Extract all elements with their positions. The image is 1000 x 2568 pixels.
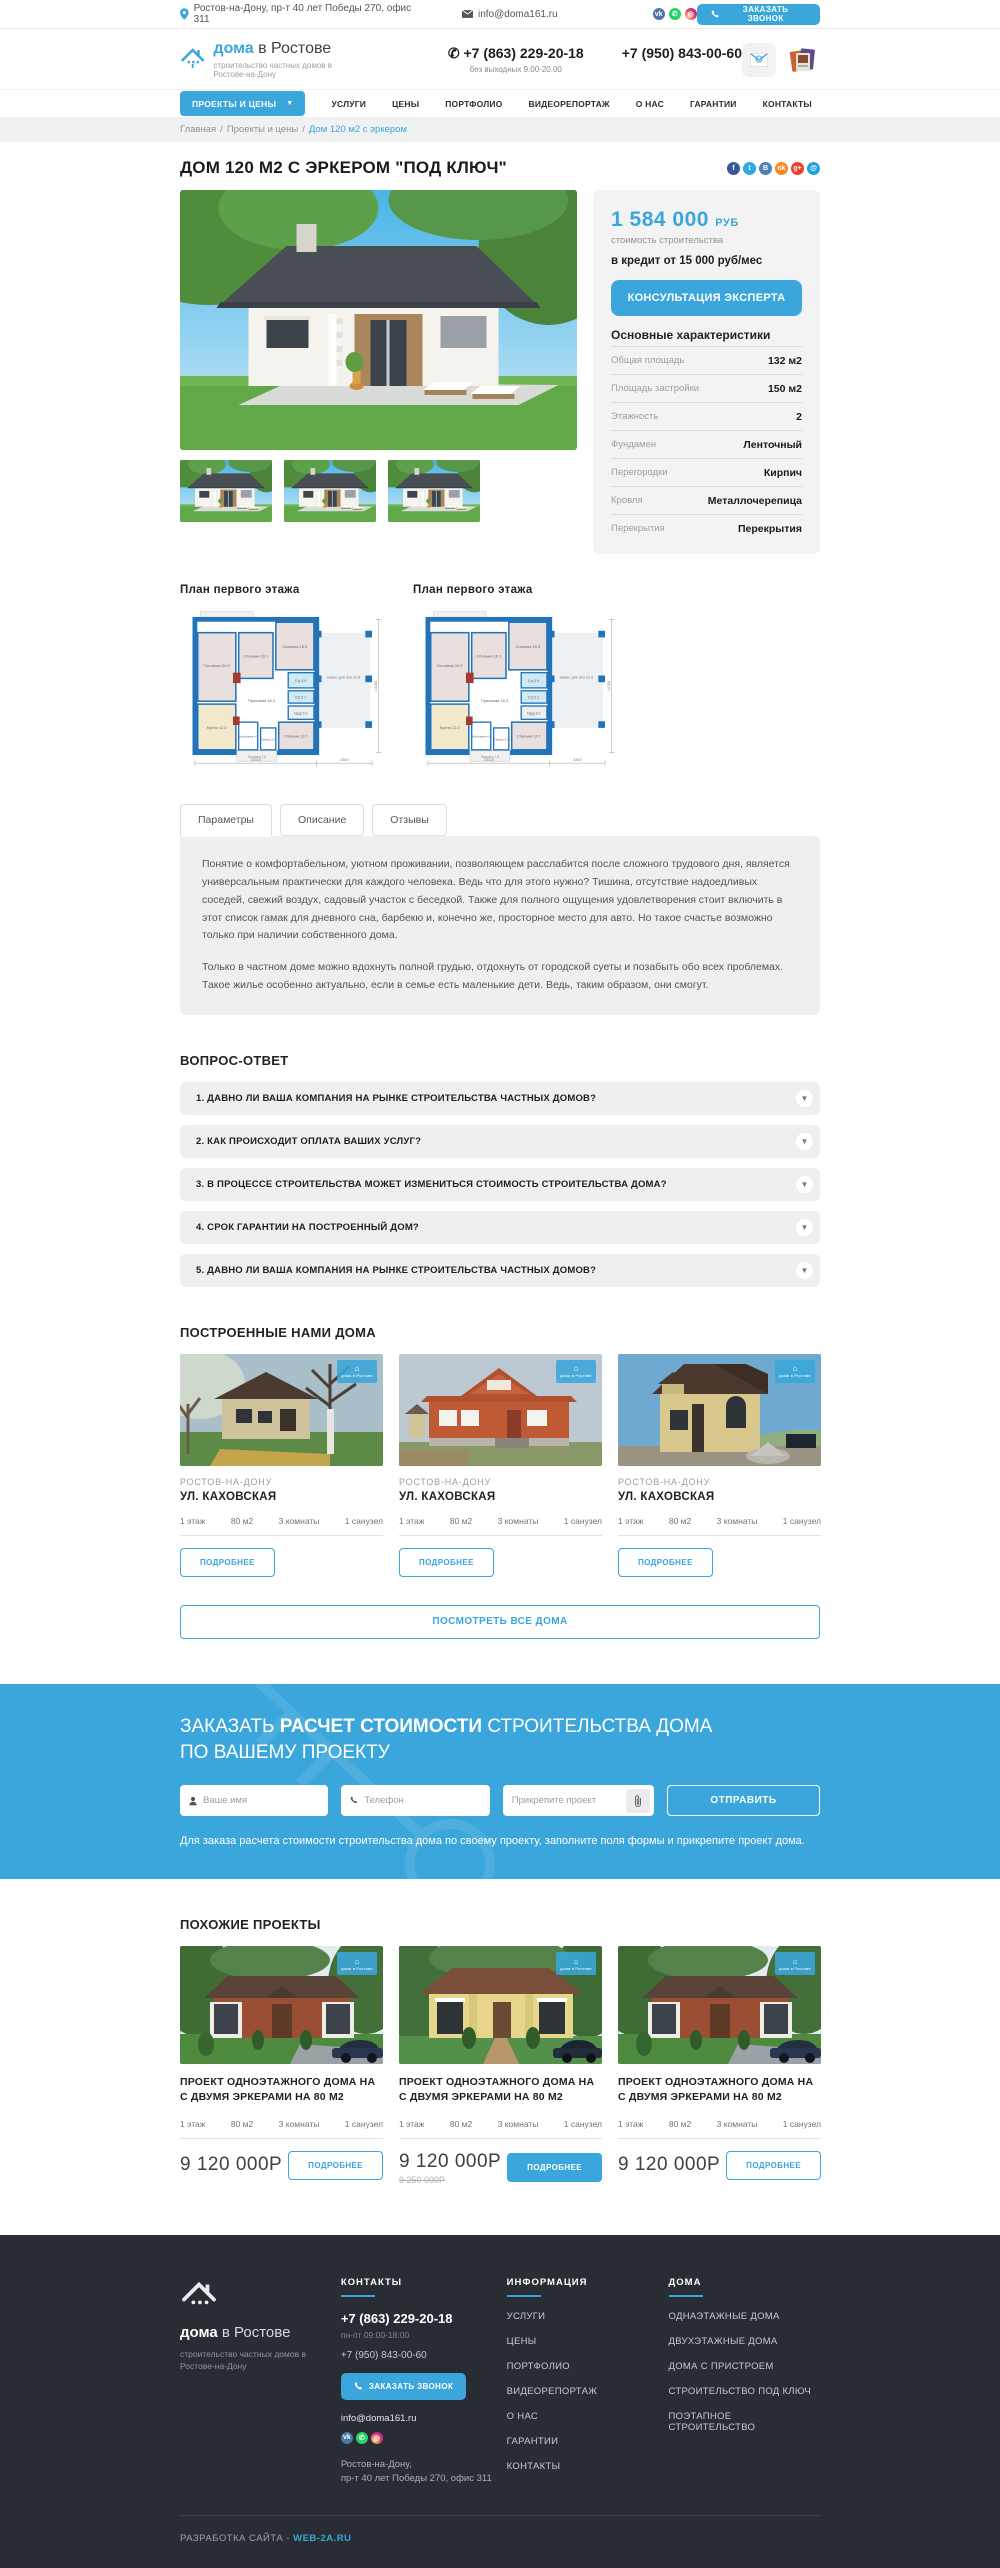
project-title: ПРОЕКТ ОДНОЭТАЖНОГО ДОМА НА С ДВУМЯ ЭРКЕ… <box>180 2075 383 2105</box>
tab-opisanie[interactable]: Описание <box>280 804 364 836</box>
logo-tagline: строительство частных домов в Ростове-на… <box>213 61 342 79</box>
logo-name-accent: дома <box>213 40 253 57</box>
chevron-down-icon: ▼ <box>796 1133 813 1150</box>
header: дома в Ростове строительство частных дом… <box>0 29 1000 89</box>
address-text: Ростов-на-Дону, пр-т 40 лет Победы 270, … <box>194 3 420 25</box>
svg-text:Бойлерная 4.5: Бойлерная 4.5 <box>472 734 492 738</box>
similar-project-card: ⌂дома в Ростове ПРОЕКТ ОДНОЭТАЖНОГО ДОМА… <box>180 1946 383 2184</box>
nav-item-ceny[interactable]: ЦЕНЫ <box>392 99 419 109</box>
footer-email[interactable]: info@doma161.ru <box>341 2413 507 2424</box>
credit-note: в кредит от 15 000 руб/мес <box>611 255 802 267</box>
svg-text:Спальня 16.1: Спальня 16.1 <box>243 653 269 658</box>
svg-text:Спальня 15.9: Спальня 15.9 <box>515 644 541 649</box>
phone-field[interactable] <box>341 1785 489 1816</box>
vk-icon[interactable]: vk <box>341 2432 353 2444</box>
footer-logo-house-icon <box>180 2277 218 2309</box>
chevron-down-icon: ▼ <box>796 1176 813 1193</box>
nav-projects-button[interactable]: ПРОЕКТЫ И ЦЕНЫ ▼ <box>180 91 305 116</box>
faq-item-3[interactable]: 3. В ПРОЦЕССЕ СТРОИТЕЛЬСТВА МОЖЕТ ИЗМЕНИ… <box>180 1168 820 1201</box>
svg-text:Гостиная 24.0: Гостиная 24.0 <box>204 663 230 668</box>
footer-link-pristroy[interactable]: ДОМА С ПРИСТРОЕМ <box>669 2361 821 2372</box>
share-facebook-icon[interactable]: f <box>727 162 740 175</box>
footer-info-title: ИНФОРМАЦИЯ <box>507 2277 669 2297</box>
footer-link-poetapnoe[interactable]: ПОЭТАПНОЕ СТРОИТЕЛЬСТВО <box>669 2411 821 2433</box>
thumbnail-1[interactable] <box>180 460 272 522</box>
consult-button[interactable]: КОНСУЛЬТАЦИЯ ЭКСПЕРТА <box>611 280 802 316</box>
breadcrumb-section[interactable]: Проекты и цены <box>227 124 298 135</box>
share-twitter-icon[interactable]: t <box>743 162 756 175</box>
svg-text:Навес для а/м 31.8: Навес для а/м 31.8 <box>327 675 361 679</box>
nav-item-kontakty[interactable]: КОНТАКТЫ <box>763 99 812 109</box>
svg-text:С/у 2.1: С/у 2.1 <box>528 695 539 699</box>
phone-main[interactable]: ✆ +7 (863) 229-20-18 <box>448 45 584 62</box>
similar-project-photo-2[interactable]: ⌂дома в Ростове <box>399 1946 602 2064</box>
header-phones: ✆ +7 (863) 229-20-18 без выходных 9.00-2… <box>448 45 742 74</box>
card-watermark-logo: ⌂дома в Ростове <box>775 1360 815 1383</box>
logo-house-icon <box>180 40 205 74</box>
footer-link-uslugi[interactable]: УСЛУГИ <box>507 2311 669 2322</box>
nav-item-portfolio[interactable]: ПОРТФОЛИО <box>445 99 502 109</box>
share-vk-icon[interactable]: В <box>759 162 772 175</box>
characteristics-title: Основные характеристики <box>611 328 802 342</box>
card-watermark-logo: ⌂дома в Ростове <box>775 1952 815 1975</box>
svg-text:Гард 3.2: Гард 3.2 <box>527 712 541 716</box>
share-ok-icon[interactable]: ok <box>775 162 788 175</box>
card-watermark-logo: ⌂дома в Ростове <box>337 1360 377 1383</box>
footer-hours: пн-пт 09:00-18:00 <box>341 2330 507 2340</box>
project-price: 9 120 000Р <box>180 2154 282 2176</box>
built-house-photo-3[interactable]: ⌂дома в Ростове <box>618 1354 821 1466</box>
card-city: РОСТОВ-НА-ДОНУ <box>180 1477 383 1487</box>
topbar-address: Ростов-на-Дону, пр-т 40 лет Победы 270, … <box>180 3 420 25</box>
price: 1 584 000 РУБ <box>611 208 802 232</box>
instagram-icon[interactable]: ◎ <box>685 8 697 20</box>
card-stats: 1 этаж80 м2 3 комнаты1 санузел <box>618 1516 821 1536</box>
share-mail-icon[interactable]: @ <box>807 162 820 175</box>
footer-phone[interactable]: +7 (863) 229-20-18 <box>341 2311 507 2326</box>
footer-link-garantii[interactable]: ГАРАНТИИ <box>507 2436 669 2447</box>
cta-note: Для заказа расчета стоимости строительст… <box>180 1835 820 1847</box>
project-title: ПРОЕКТ ОДНОЭТАЖНОГО ДОМА НА С ДВУМЯ ЭРКЕ… <box>618 2075 821 2105</box>
thumbnail-2[interactable] <box>284 460 376 522</box>
person-icon <box>189 1796 197 1806</box>
gallery-widget-icon[interactable] <box>786 43 820 77</box>
card-city: РОСТОВ-НА-ДОНУ <box>618 1477 821 1487</box>
built-house-card: ⌂дома в Ростове РОСТОВ-НА-ДОНУ УЛ. КАХОВ… <box>399 1354 602 1577</box>
faq-item-4[interactable]: 4. СРОК ГАРАНТИИ НА ПОСТРОЕННЫЙ ДОМ? ▼ <box>180 1211 820 1244</box>
logo-name-rest: в Ростове <box>254 40 332 57</box>
svg-text:Бойлерная 4.5: Бойлерная 4.5 <box>239 734 259 738</box>
svg-text:С/у 3.9: С/у 3.9 <box>528 679 539 683</box>
footer-credits: РАЗРАБОТКА САЙТА - WEB-2A.RU <box>180 2516 820 2568</box>
footer-link-portfolio[interactable]: ПОРТФОЛИО <box>507 2361 669 2372</box>
logo[interactable]: дома в Ростове строительство частных дом… <box>180 40 343 79</box>
nav-item-uslugi[interactable]: УСЛУГИ <box>331 99 366 109</box>
footer-link-kontakty[interactable]: КОНТАКТЫ <box>507 2461 669 2472</box>
product-thumbnails <box>180 460 577 522</box>
chevron-down-icon: ▼ <box>286 100 293 107</box>
svg-text:13110: 13110 <box>251 758 261 762</box>
card-stats: 1 этаж80 м2 3 комнаты1 санузел <box>180 2119 383 2139</box>
card-stats: 1 этаж80 м2 3 комнаты1 санузел <box>399 1516 602 1536</box>
similar-project-card: ⌂дома в Ростове ПРОЕКТ ОДНОЭТАЖНОГО ДОМА… <box>618 1946 821 2184</box>
breadcrumb-current: Дом 120 м2 с эркером <box>309 124 407 135</box>
footer-link-2floor[interactable]: ДВУХЭТАЖНЫЕ ДОМА <box>669 2336 821 2347</box>
description-paragraph-1: Понятие о комфортабельном, уютном прожив… <box>202 856 798 945</box>
nav-item-onas[interactable]: О НАС <box>636 99 664 109</box>
char-row-roof: КровляМеталлочерепица <box>611 487 802 515</box>
char-row-floors: Этажность2 <box>611 403 802 431</box>
similar-projects-title: ПОХОЖИЕ ПРОЕКТЫ <box>180 1917 820 1932</box>
thumbnail-3[interactable] <box>388 460 480 522</box>
project-title: ПРОЕКТ ОДНОЭТАЖНОГО ДОМА НА С ДВУМЯ ЭРКЕ… <box>399 2075 602 2105</box>
char-row-slabs: ПерекрытияПерекрытия <box>611 515 802 542</box>
topbar-email[interactable]: info@doma161.ru <box>462 9 558 20</box>
card-stats: 1 этаж80 м2 3 комнаты1 санузел <box>180 1516 383 1536</box>
name-input[interactable] <box>203 1795 319 1806</box>
built-houses-title: ПОСТРОЕННЫЕ НАМИ ДОМА <box>180 1325 820 1340</box>
floor-plan-1: Навес для а/м 31.8 Терраса 16.2 Гостиная… <box>180 606 385 766</box>
char-row-foundation: ФундаменЛенточный <box>611 431 802 459</box>
char-row-partitions: ПерегородкиКирпич <box>611 459 802 487</box>
built-house-photo-1[interactable]: ⌂дома в Ростове <box>180 1354 383 1466</box>
faq-item-2[interactable]: 2. КАК ПРОИСХОДИТ ОПЛАТА ВАШИХ УСЛУГ? ▼ <box>180 1125 820 1158</box>
similar-project-photo-1[interactable]: ⌂дома в Ростове <box>180 1946 383 2064</box>
footer-link-onas[interactable]: О НАС <box>507 2411 669 2422</box>
instagram-icon[interactable]: ◎ <box>371 2432 383 2444</box>
chevron-down-icon: ▼ <box>796 1219 813 1236</box>
chevron-down-icon: ▼ <box>796 1262 813 1279</box>
footer-callback-button[interactable]: ЗАКАЗАТЬ ЗВОНОК <box>341 2373 466 2400</box>
footer-link-video[interactable]: ВИДЕОРЕПОРТАЖ <box>507 2386 669 2397</box>
char-row-footprint: Площадь застройки150 м2 <box>611 375 802 403</box>
footer-phone2[interactable]: +7 (950) 843-00-60 <box>341 2350 507 2361</box>
product-tabs: Параметры Описание Отзывы <box>180 804 820 836</box>
breadcrumb: Главная / Проекты и цены / Дом 120 м2 с … <box>0 117 1000 142</box>
details-button[interactable]: ПОДРОБНЕЕ <box>399 1548 494 1577</box>
details-button[interactable]: ПОДРОБНЕЕ <box>288 2151 383 2180</box>
callback-button[interactable]: ЗАКАЗАТЬ ЗВОНОК <box>697 4 820 25</box>
view-all-houses-button[interactable]: ПОСМОТРЕТЬ ВСЕ ДОМА <box>180 1605 820 1639</box>
phone-input[interactable] <box>364 1795 480 1806</box>
project-price: 9 120 000Р <box>618 2154 720 2176</box>
cost-calculation-cta: ЗАКАЗАТЬ РАСЧЕТ СТОИМОСТИ СТРОИТЕЛЬСТВА … <box>0 1684 1000 1879</box>
floor-plan-title-1: План первого этажа <box>180 584 385 596</box>
footer-link-1floor[interactable]: ОДНАЭТАЖНЫЕ ДОМА <box>669 2311 821 2322</box>
price-note: стоимость строительства <box>611 235 802 246</box>
submit-button[interactable]: ОТПРАВИТЬ <box>667 1785 820 1816</box>
svg-text:С/у 3.9: С/у 3.9 <box>295 679 306 683</box>
footer-link-ceny[interactable]: ЦЕНЫ <box>507 2336 669 2347</box>
phone-icon <box>350 1796 358 1805</box>
svg-text:13110: 13110 <box>484 758 494 762</box>
whatsapp-icon[interactable]: ✆ <box>669 8 681 20</box>
nav-item-video[interactable]: ВИДЕОРЕПОРТАЖ <box>529 99 610 109</box>
footer-tagline: строительство частных домов в Ростове-на… <box>180 2348 320 2374</box>
faq-title: ВОПРОС-ОТВЕТ <box>180 1053 820 1068</box>
floor-plan-2: Навес для а/м 31.8 Терраса 16.2 Гостиная… <box>413 606 618 766</box>
svg-text:Прихожая 16.3: Прихожая 16.3 <box>248 698 276 703</box>
svg-text:Тамбур 2.3: Тамбур 2.3 <box>494 737 509 741</box>
built-house-photo-2[interactable]: ⌂дома в Ростове <box>399 1354 602 1466</box>
phone-icon <box>354 2382 363 2391</box>
svg-text:14150: 14150 <box>607 681 611 692</box>
email-widget-icon[interactable] <box>742 43 776 77</box>
location-pin-icon <box>180 8 189 20</box>
chevron-down-icon: ▼ <box>796 1090 813 1107</box>
svg-text:3300: 3300 <box>340 758 348 762</box>
tab-otzyvy[interactable]: Отзывы <box>372 804 446 836</box>
envelope-icon <box>462 10 473 18</box>
developer-link[interactable]: WEB-2A.RU <box>293 2533 351 2544</box>
nav-item-garantii[interactable]: ГАРАНТИИ <box>690 99 737 109</box>
vk-icon[interactable]: vk <box>653 8 665 20</box>
details-button[interactable]: ПОДРОБНЕЕ <box>507 2153 602 2182</box>
details-button[interactable]: ПОДРОБНЕЕ <box>180 1548 275 1577</box>
card-street: УЛ. КАХОВСКАЯ <box>618 1491 821 1503</box>
faq-item-1[interactable]: 1. ДАВНО ЛИ ВАША КОМПАНИЯ НА РЫНКЕ СТРОИ… <box>180 1082 820 1115</box>
svg-text:Спальня 13.7: Спальня 13.7 <box>284 734 308 738</box>
svg-text:Гард 3.2: Гард 3.2 <box>294 712 308 716</box>
main-nav: ПРОЕКТЫ И ЦЕНЫ ▼ УСЛУГИ ЦЕНЫ ПОРТФОЛИО В… <box>0 89 1000 117</box>
card-street: УЛ. КАХОВСКАЯ <box>180 1491 383 1503</box>
tab-parametry[interactable]: Параметры <box>180 804 272 837</box>
name-field[interactable] <box>180 1785 328 1816</box>
cta-title: ЗАКАЗАТЬ РАСЧЕТ СТОИМОСТИ СТРОИТЕЛЬСТВА … <box>180 1714 820 1765</box>
cta-form: Прикрепите проект ОТПРАВИТЬ <box>180 1785 820 1816</box>
similar-project-card: ⌂дома в Ростове ПРОЕКТ ОДНОЭТАЖНОГО ДОМА… <box>399 1946 602 2184</box>
svg-text:Прихожая 16.3: Прихожая 16.3 <box>481 698 509 703</box>
card-watermark-logo: ⌂дома в Ростове <box>337 1952 377 1975</box>
project-old-price: 9 250 000Р <box>399 2175 501 2185</box>
svg-text:Спальня 16.1: Спальня 16.1 <box>476 653 502 658</box>
svg-text:Спальня 15.9: Спальня 15.9 <box>282 644 308 649</box>
svg-text:С/у 2.1: С/у 2.1 <box>295 695 306 699</box>
svg-text:14150: 14150 <box>374 681 378 692</box>
paperclip-icon <box>626 1789 650 1813</box>
card-city: РОСТОВ-НА-ДОНУ <box>399 1477 602 1487</box>
svg-text:Кухня 12.0: Кухня 12.0 <box>207 725 227 730</box>
details-button[interactable]: ПОДРОБНЕЕ <box>618 1548 713 1577</box>
description-paragraph-2: Только в частном доме можно вдохнуть пол… <box>202 959 798 995</box>
footer-link-podkluch[interactable]: СТРОИТЕЛЬСТВО ПОД КЛЮЧ <box>669 2386 821 2397</box>
built-house-card: ⌂дома в Ростове РОСТОВ-НА-ДОНУ УЛ. КАХОВ… <box>180 1354 383 1577</box>
topbar: Ростов-на-Дону, пр-т 40 лет Победы 270, … <box>0 0 1000 29</box>
svg-text:Спальня 13.7: Спальня 13.7 <box>517 734 541 738</box>
footer-address: Ростов-на-Дону,пр-т 40 лет Победы 270, о… <box>341 2458 507 2487</box>
floor-plan-title-2: План первого этажа <box>413 584 618 596</box>
phone-alt[interactable]: +7 (950) 843-00-60 <box>622 45 742 61</box>
svg-text:Навес для а/м 31.8: Навес для а/м 31.8 <box>560 675 594 679</box>
phone-icon <box>711 10 720 19</box>
char-row-area: Общая площадь132 м2 <box>611 346 802 375</box>
footer: дома в Ростове строительство частных дом… <box>0 2235 1000 2568</box>
card-watermark-logo: ⌂дома в Ростове <box>556 1360 596 1383</box>
footer-logo-name: дома в Ростове <box>180 2324 341 2341</box>
email-text: info@doma161.ru <box>478 9 558 20</box>
card-stats: 1 этаж80 м2 3 комнаты1 санузел <box>399 2119 602 2139</box>
phone-hours: без выходных 9.00-20.00 <box>448 65 584 74</box>
share-buttons: f t В ok g+ @ <box>727 162 820 175</box>
svg-text:Гостиная 24.0: Гостиная 24.0 <box>437 663 463 668</box>
page-title: ДОМ 120 М2 С ЭРКЕРОМ "ПОД КЛЮЧ" <box>180 158 507 178</box>
description-panel: Понятие о комфортабельном, уютном прожив… <box>180 836 820 1015</box>
built-house-card: ⌂дома в Ростове РОСТОВ-НА-ДОНУ УЛ. КАХОВ… <box>618 1354 821 1577</box>
whatsapp-icon[interactable]: ✆ <box>356 2432 368 2444</box>
svg-text:3300: 3300 <box>573 758 581 762</box>
share-gplus-icon[interactable]: g+ <box>791 162 804 175</box>
breadcrumb-home[interactable]: Главная <box>180 124 216 135</box>
attach-project-field[interactable]: Прикрепите проект <box>503 1785 654 1816</box>
svg-text:Тамбур 2.3: Тамбур 2.3 <box>261 737 276 741</box>
footer-contacts-title: КОНТАКТЫ <box>341 2277 507 2297</box>
footer-socials: vk ✆ ◎ <box>341 2432 507 2444</box>
product-main-image <box>180 190 577 450</box>
topbar-socials: vk ✆ ◎ <box>653 8 697 20</box>
price-panel: 1 584 000 РУБ стоимость строительства в … <box>593 190 820 554</box>
project-price: 9 120 000Р <box>399 2151 501 2172</box>
faq-item-5[interactable]: 5. ДАВНО ЛИ ВАША КОМПАНИЯ НА РЫНКЕ СТРОИ… <box>180 1254 820 1287</box>
card-street: УЛ. КАХОВСКАЯ <box>399 1491 602 1503</box>
similar-project-photo-3[interactable]: ⌂дома в Ростове <box>618 1946 821 2064</box>
svg-text:Кухня 12.0: Кухня 12.0 <box>440 725 460 730</box>
card-stats: 1 этаж80 м2 3 комнаты1 санузел <box>618 2119 821 2139</box>
card-watermark-logo: ⌂дома в Ростове <box>556 1952 596 1975</box>
details-button[interactable]: ПОДРОБНЕЕ <box>726 2151 821 2180</box>
footer-houses-title: ДОМА <box>669 2277 821 2297</box>
